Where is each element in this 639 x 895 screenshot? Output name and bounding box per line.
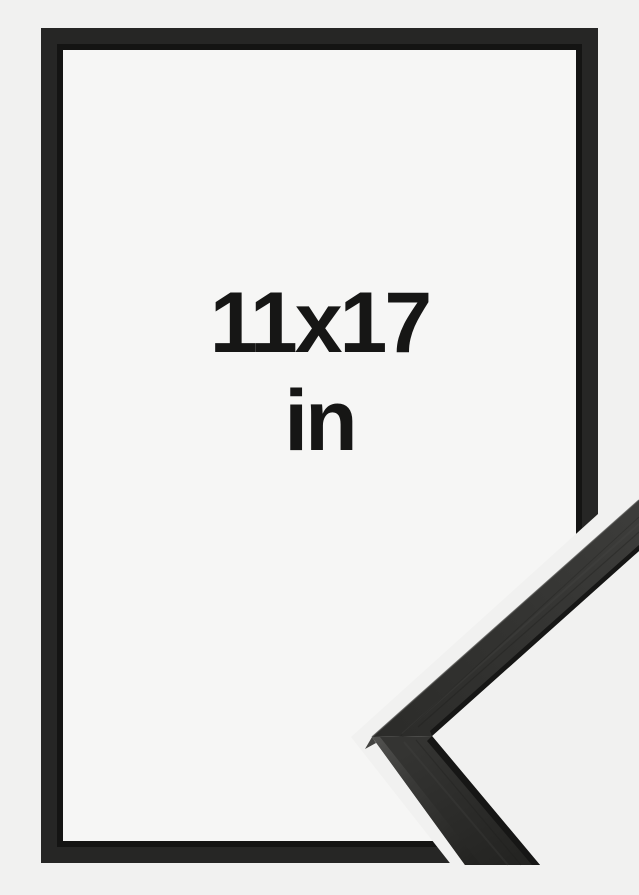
size-label-unit: in	[63, 372, 576, 470]
frame-product-photo: 11x17 in	[0, 0, 639, 895]
size-label: 11x17 in	[63, 274, 576, 470]
size-label-dimensions: 11x17	[63, 274, 576, 372]
